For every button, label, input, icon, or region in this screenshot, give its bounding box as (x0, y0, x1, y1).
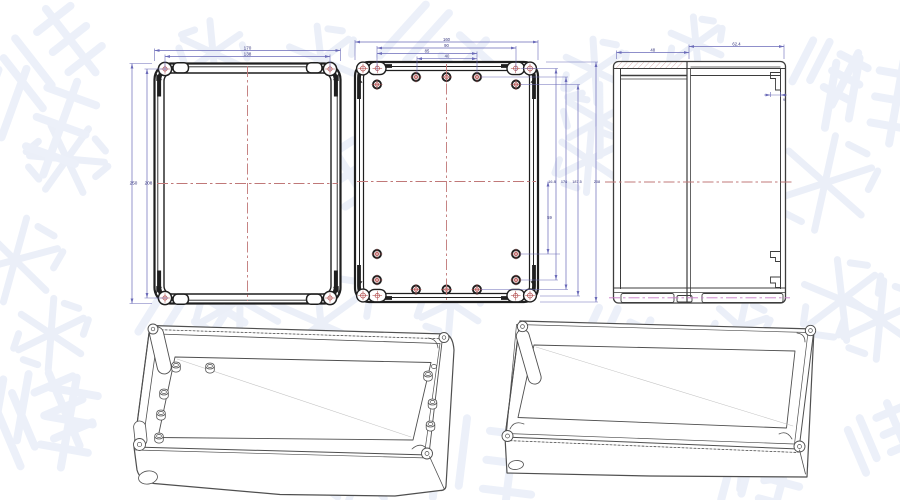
svg-text:160: 160 (443, 37, 451, 42)
svg-text:208: 208 (594, 180, 600, 184)
svg-text:62.4: 62.4 (732, 41, 741, 46)
svg-text:48: 48 (650, 47, 655, 52)
svg-text:40: 40 (445, 54, 450, 59)
svg-text:138: 138 (244, 51, 252, 56)
svg-text:16.8: 16.8 (548, 180, 555, 184)
svg-text:59: 59 (547, 215, 552, 220)
svg-text:250: 250 (130, 181, 138, 186)
svg-text:187.5: 187.5 (572, 180, 582, 184)
svg-text:85: 85 (425, 48, 430, 53)
svg-text:170: 170 (244, 45, 252, 50)
svg-text:208: 208 (145, 181, 153, 186)
svg-text:90: 90 (444, 43, 449, 48)
svg-text:174: 174 (561, 180, 567, 184)
svg-text:9: 9 (783, 98, 785, 102)
